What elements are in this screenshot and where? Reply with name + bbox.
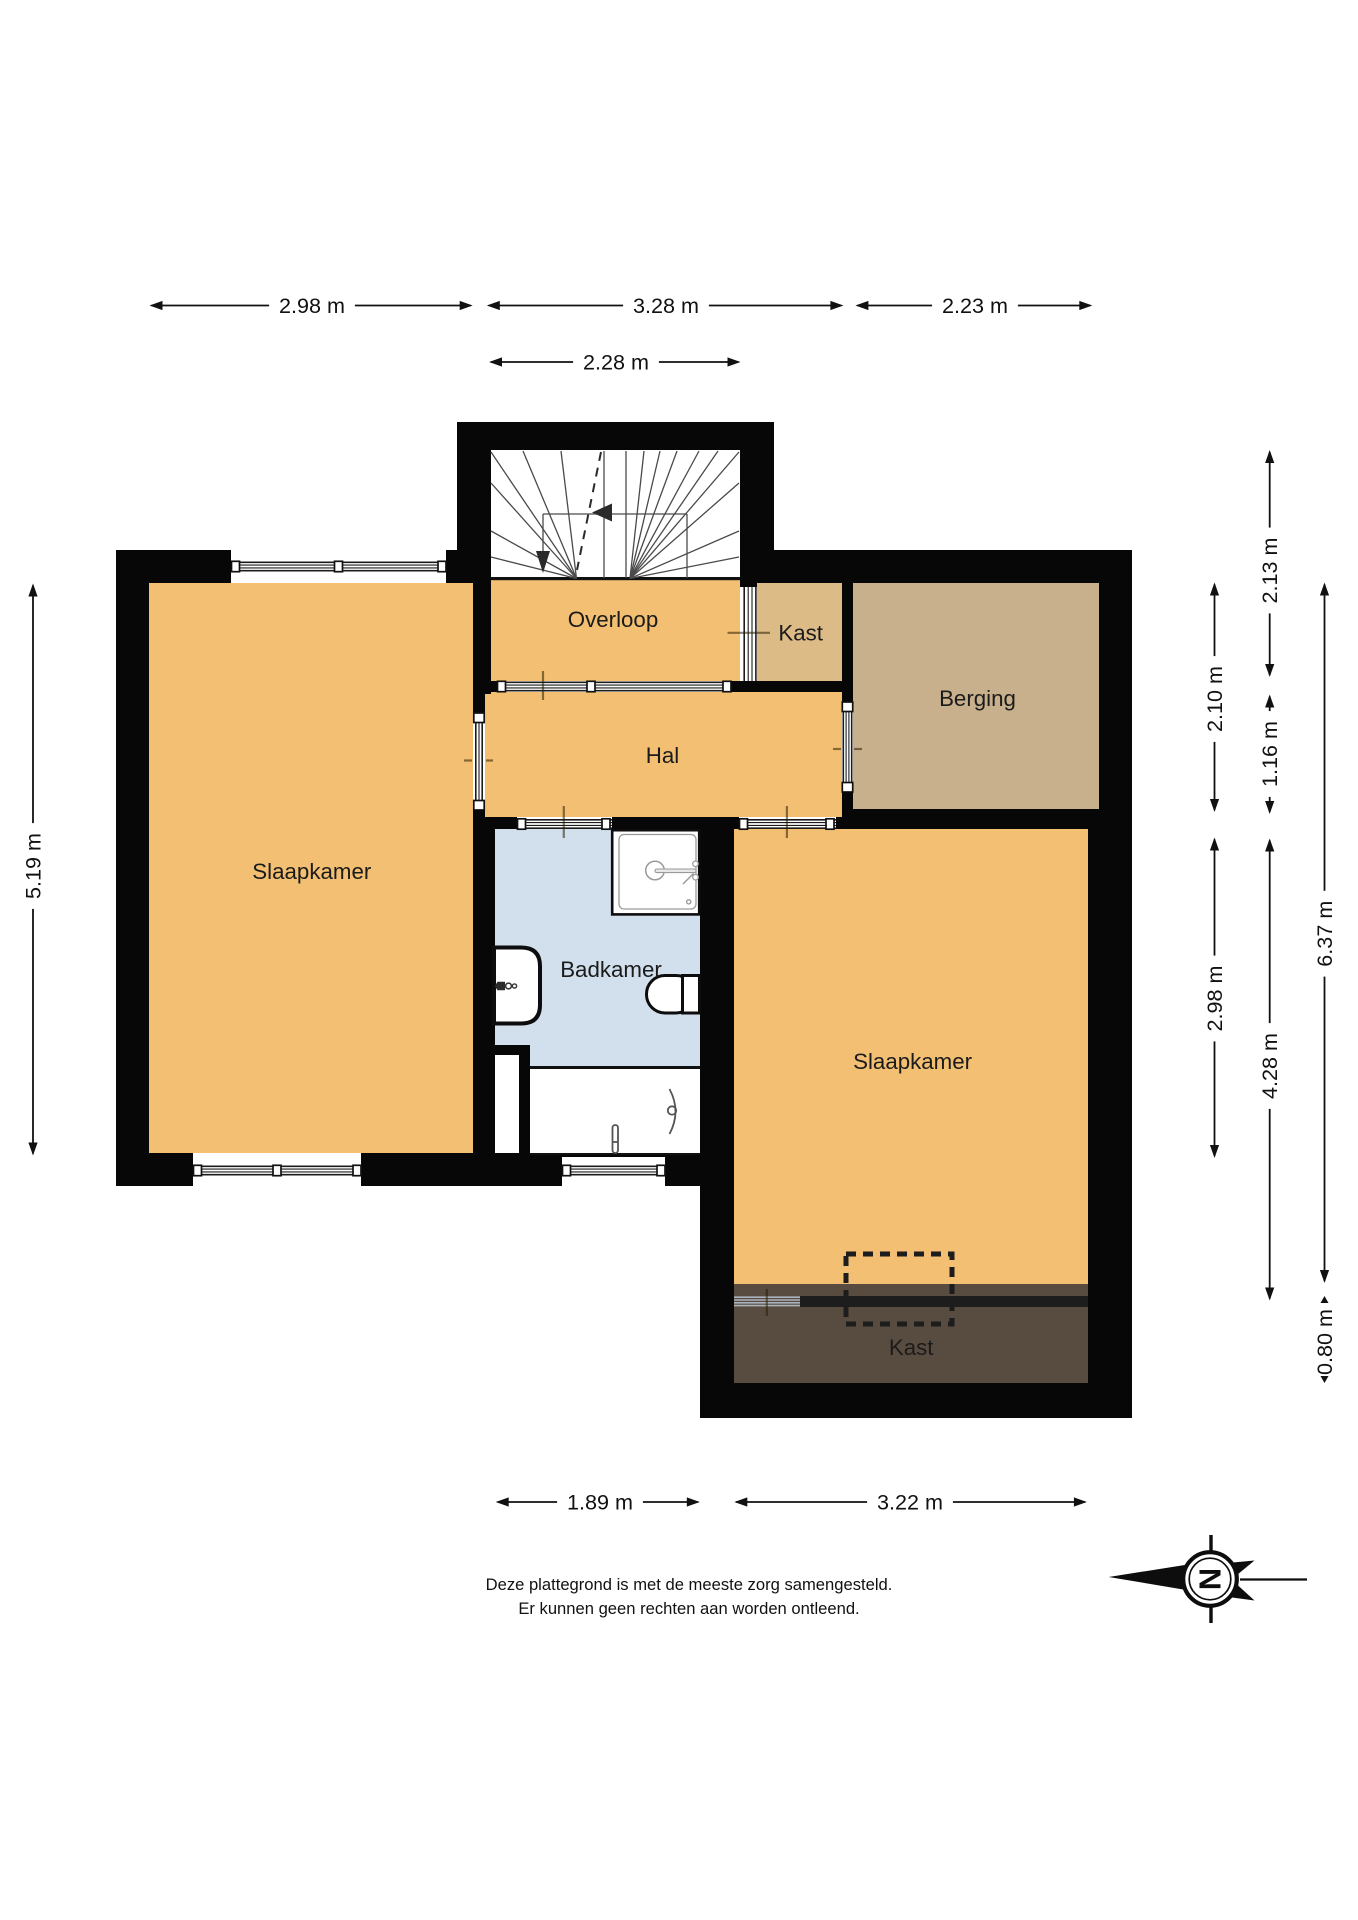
svg-text:Badkamer: Badkamer <box>560 957 662 982</box>
svg-text:Slaapkamer: Slaapkamer <box>252 859 372 884</box>
svg-text:Kast: Kast <box>889 1335 934 1360</box>
svg-text:2.23 m: 2.23 m <box>942 293 1008 318</box>
svg-text:0.80 m: 0.80 m <box>1312 1309 1337 1375</box>
svg-text:2.10 m: 2.10 m <box>1202 666 1227 732</box>
svg-text:Kast: Kast <box>778 621 823 646</box>
svg-text:2.13 m: 2.13 m <box>1257 537 1282 603</box>
svg-text:Deze plattegrond is met de mee: Deze plattegrond is met de meeste zorg s… <box>486 1575 893 1594</box>
svg-text:2.98 m: 2.98 m <box>279 293 345 318</box>
svg-text:Overloop: Overloop <box>568 607 658 632</box>
svg-text:Berging: Berging <box>939 686 1016 711</box>
svg-text:1.89 m: 1.89 m <box>567 1489 633 1514</box>
svg-text:Slaapkamer: Slaapkamer <box>853 1049 973 1074</box>
svg-text:Hal: Hal <box>646 743 679 768</box>
svg-text:2.98 m: 2.98 m <box>1202 965 1227 1031</box>
svg-text:N: N <box>1193 1568 1228 1590</box>
svg-text:5.19 m: 5.19 m <box>20 833 45 899</box>
svg-text:3.22 m: 3.22 m <box>877 1489 943 1514</box>
svg-text:6.37 m: 6.37 m <box>1312 901 1337 967</box>
svg-text:3.28 m: 3.28 m <box>633 293 699 318</box>
svg-text:2.28 m: 2.28 m <box>583 349 649 374</box>
svg-text:Er kunnen geen rechten aan wor: Er kunnen geen rechten aan worden ontlee… <box>518 1599 859 1618</box>
svg-text:4.28 m: 4.28 m <box>1257 1033 1282 1099</box>
svg-text:1.16 m: 1.16 m <box>1257 721 1282 787</box>
